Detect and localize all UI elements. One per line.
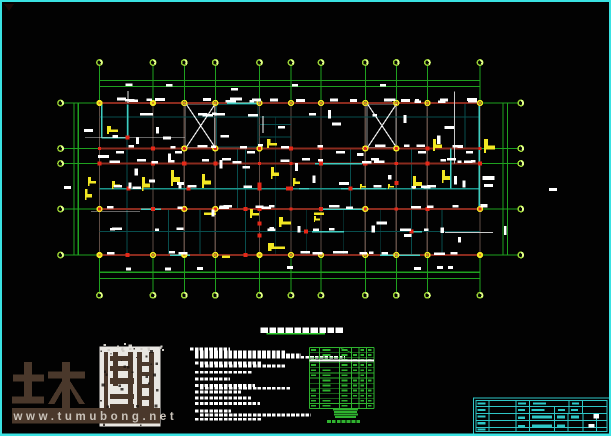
svg-text:www.tumubong.net: www.tumubong.net xyxy=(13,411,178,423)
